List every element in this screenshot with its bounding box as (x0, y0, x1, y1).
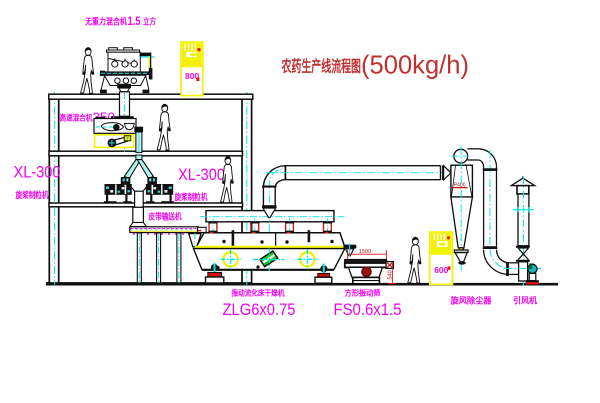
svg-text:1500: 1500 (359, 249, 371, 255)
svg-text:XL-300: XL-300 (178, 166, 225, 184)
svg-text:旋桨制粒机: 旋桨制粒机 (174, 192, 208, 202)
svg-text:旋风除尘器: 旋风除尘器 (450, 296, 493, 306)
svg-text:ZLG6x0.75: ZLG6x0.75 (223, 300, 296, 319)
svg-text:立方: 立方 (143, 17, 156, 27)
svg-text:XL-300: XL-300 (14, 164, 61, 182)
svg-text:540: 540 (388, 270, 394, 279)
svg-text:引风机: 引风机 (513, 296, 538, 306)
svg-text:振动流化床干燥机: 振动流化床干燥机 (232, 288, 285, 298)
svg-text:皮带输送机: 皮带输送机 (148, 212, 182, 222)
svg-text:(500kg/h): (500kg/h) (361, 50, 469, 80)
svg-text:无重力混合机: 无重力混合机 (84, 17, 127, 27)
svg-text:1.5: 1.5 (128, 16, 141, 28)
svg-text:旋桨制粒机: 旋桨制粒机 (15, 190, 49, 200)
svg-text:方形振动筛: 方形振动筛 (345, 288, 381, 298)
svg-text:600: 600 (434, 265, 448, 275)
svg-text:FS0.6x1.5: FS0.6x1.5 (334, 300, 402, 319)
svg-text:农药生产线流程图: 农药生产线流程图 (281, 57, 361, 76)
svg-text:高速混合机: 高速混合机 (60, 113, 93, 123)
